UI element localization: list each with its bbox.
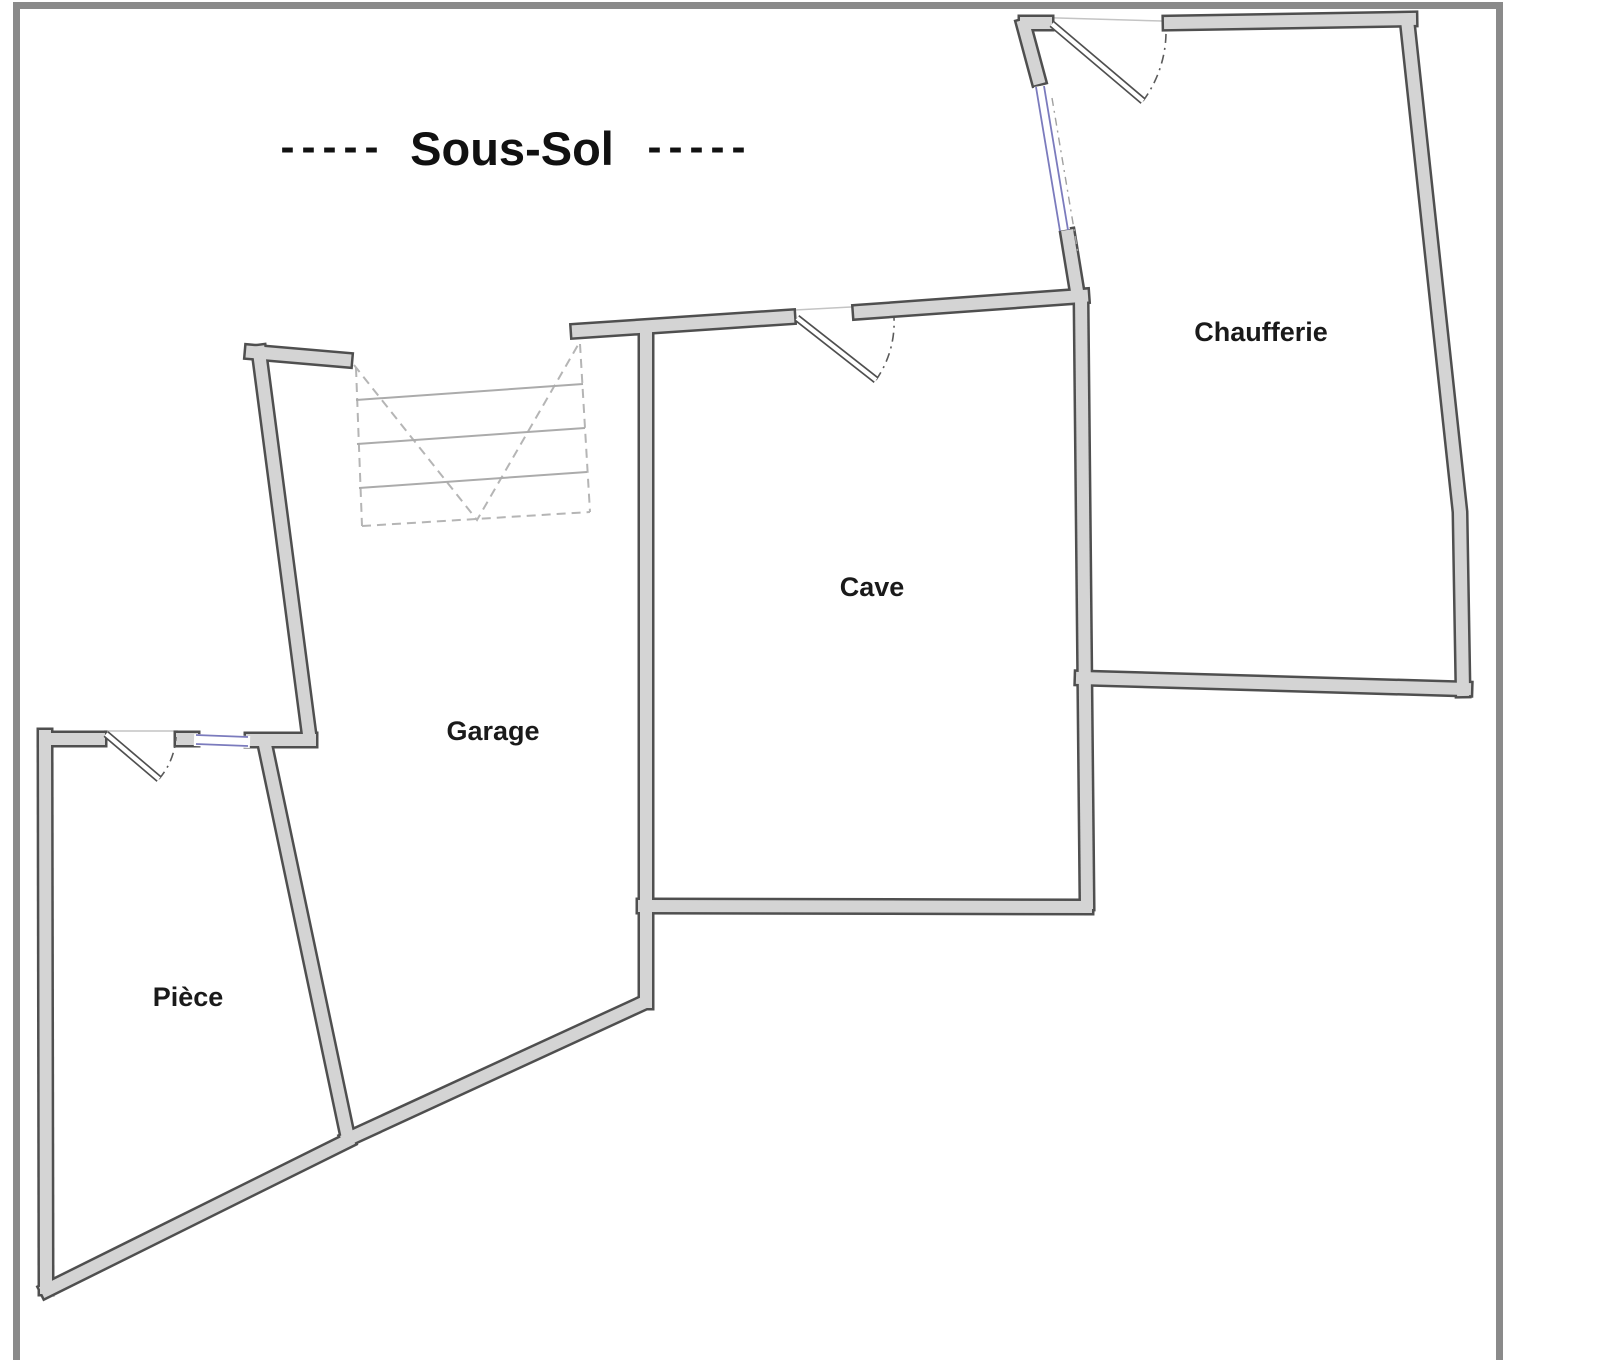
window-glass — [194, 740, 250, 742]
stair-direction-lines — [354, 345, 578, 520]
floorplan-drawing: ----- Sous-Sol ----- Chaufferie Cave Gar… — [0, 0, 1600, 1360]
walls-fill — [45, 19, 1465, 1290]
floorplan-page: ----- Sous-Sol ----- Chaufferie Cave Gar… — [0, 0, 1600, 1360]
door-swing-arc — [159, 737, 176, 779]
door-piece — [106, 734, 176, 779]
walls-outline — [45, 19, 1465, 1290]
title-dashes-right: ----- — [648, 123, 753, 170]
staircase — [354, 344, 590, 526]
door-cave — [797, 318, 894, 380]
window-piece — [194, 735, 250, 746]
stair-step-2 — [357, 428, 585, 444]
room-label-piece: Pièce — [153, 982, 224, 1012]
stair-step-3 — [359, 472, 587, 488]
room-label-cave: Cave — [840, 572, 905, 602]
room-label-chaufferie: Chaufferie — [1194, 317, 1328, 347]
stair-edge-left — [356, 368, 362, 526]
title-text: Sous-Sol — [410, 122, 614, 175]
door-leaf — [797, 318, 876, 380]
room-label-garage: Garage — [446, 716, 539, 746]
window-glass — [1040, 86, 1064, 230]
stair-step-1 — [356, 384, 583, 400]
door-leaf — [1052, 24, 1143, 101]
door-swing-arc — [1143, 29, 1166, 101]
door-leaf — [106, 734, 159, 779]
door-chaufferie — [1052, 24, 1166, 101]
plan-title: ----- Sous-Sol ----- — [281, 122, 753, 175]
title-dashes-left: ----- — [281, 123, 386, 170]
door-swing-arc — [876, 318, 894, 380]
